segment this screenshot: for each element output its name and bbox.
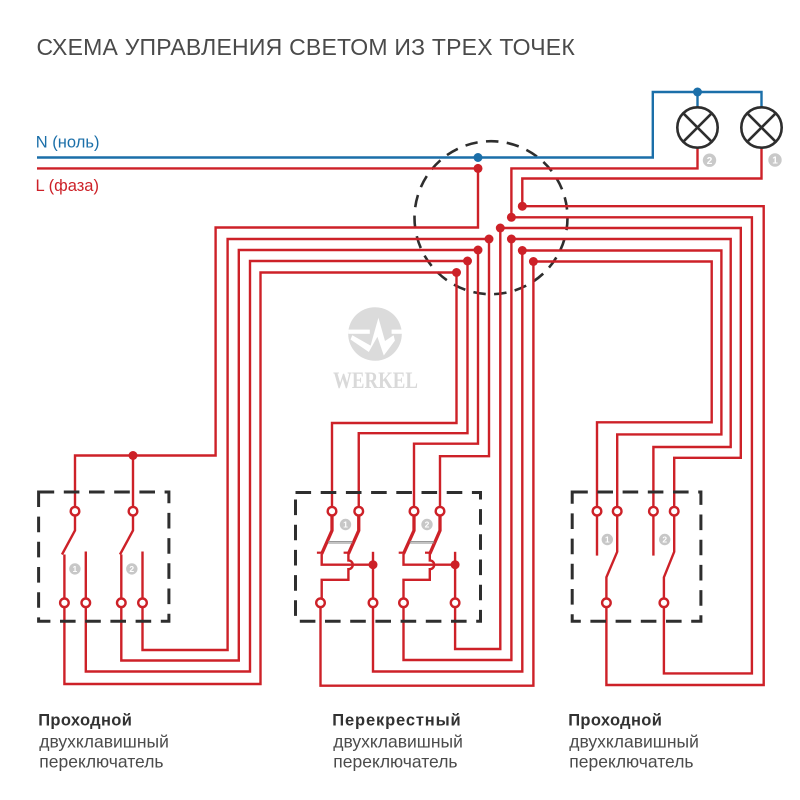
svg-text:переключатель: переключатель bbox=[39, 751, 163, 771]
svg-text:1: 1 bbox=[73, 564, 78, 574]
svg-text:N (ноль): N (ноль) bbox=[36, 134, 100, 152]
svg-text:2: 2 bbox=[662, 535, 667, 545]
svg-text:2: 2 bbox=[707, 156, 713, 167]
svg-text:Перекрестный: Перекрестный bbox=[332, 711, 461, 729]
svg-text:переключатель: переключатель bbox=[333, 751, 457, 771]
svg-text:Проходной: Проходной bbox=[568, 711, 662, 729]
svg-text:1: 1 bbox=[343, 520, 348, 530]
svg-text:1: 1 bbox=[772, 156, 778, 167]
svg-text:2: 2 bbox=[425, 520, 430, 530]
svg-text:СХЕМА УПРАВЛЕНИЯ СВЕТОМ ИЗ ТРЕ: СХЕМА УПРАВЛЕНИЯ СВЕТОМ ИЗ ТРЕХ ТОЧЕК bbox=[37, 34, 576, 60]
svg-text:WERKEL: WERKEL bbox=[333, 367, 418, 393]
svg-text:L (фаза): L (фаза) bbox=[36, 177, 99, 195]
svg-text:1: 1 bbox=[605, 535, 610, 545]
svg-text:Проходной: Проходной bbox=[38, 711, 132, 729]
svg-text:2: 2 bbox=[129, 564, 134, 574]
svg-text:двухклавишный: двухклавишный bbox=[39, 732, 169, 752]
svg-text:двухклавишный: двухклавишный bbox=[569, 732, 699, 752]
svg-text:переключатель: переключатель bbox=[569, 751, 693, 771]
svg-text:двухклавишный: двухклавишный bbox=[333, 732, 463, 752]
